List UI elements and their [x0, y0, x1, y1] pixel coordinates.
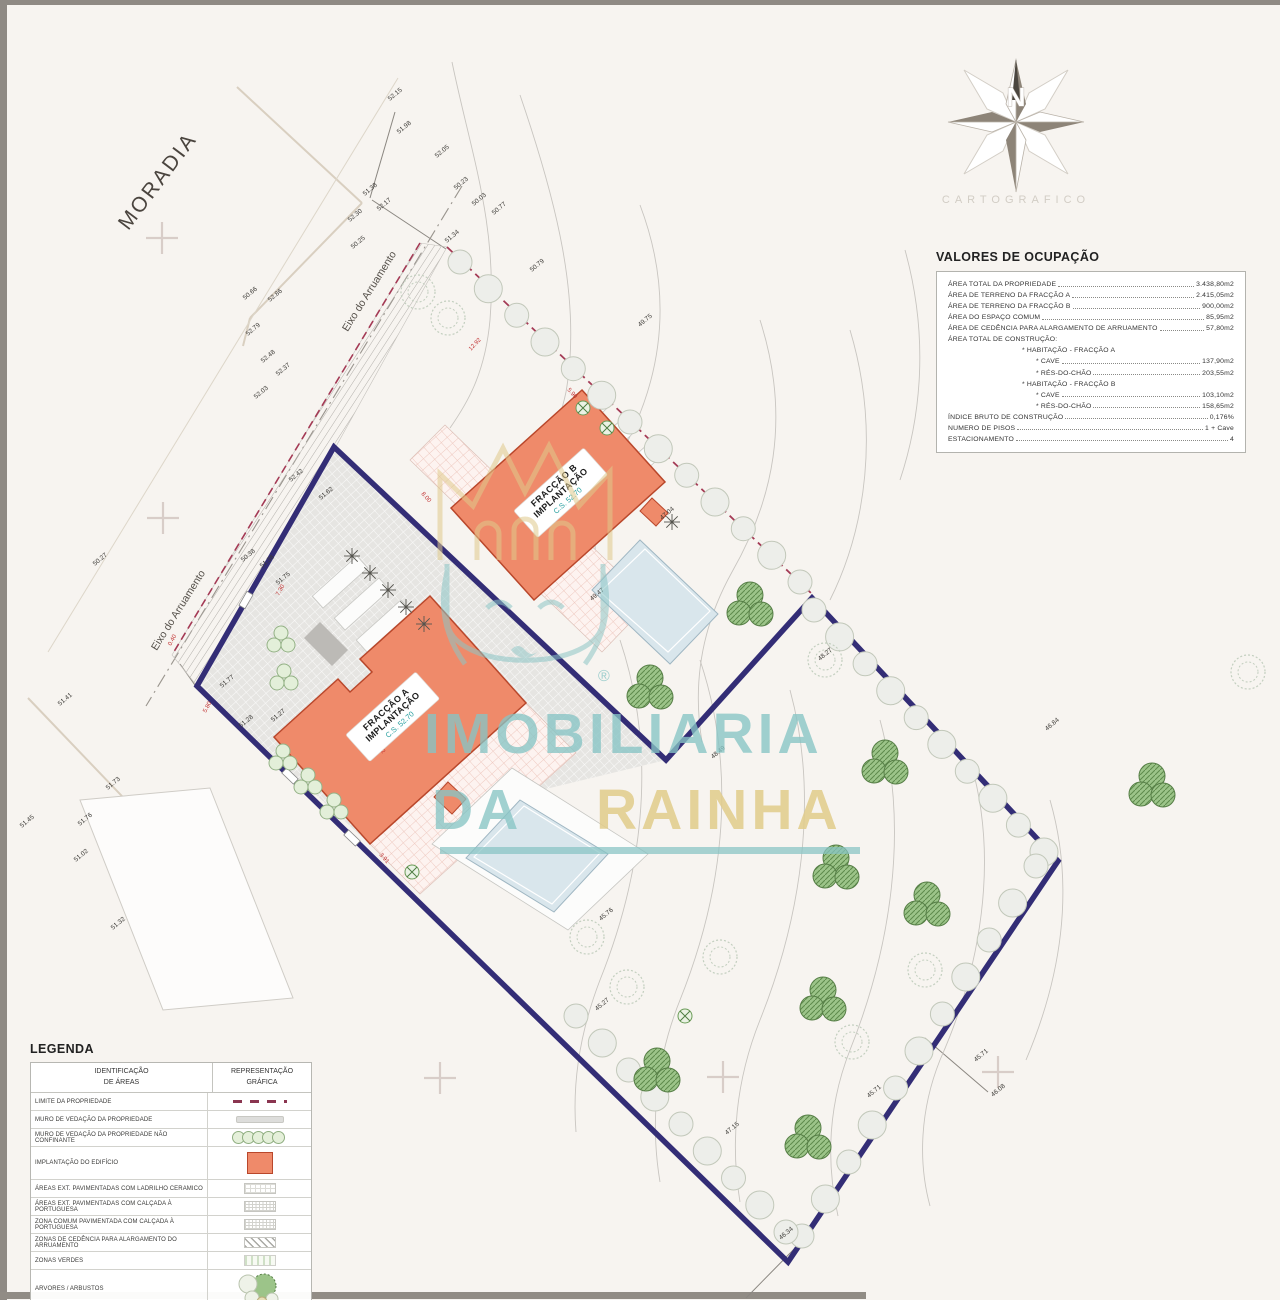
shrub-circle — [884, 1076, 908, 1100]
shrub-circle — [588, 381, 616, 409]
valores-row: * HABITAÇÃO - FRACÇÃO B — [948, 381, 1234, 388]
occupation-values-panel: VALORES DE OCUPAÇÃO ÁREA TOTAL DA PROPRI… — [936, 250, 1246, 453]
valores-row: * CAVE137,90m2 — [948, 358, 1234, 365]
survey-cross — [707, 1061, 739, 1093]
elevation-label: 50.77 — [491, 200, 508, 216]
elevation-label: 45.27 — [594, 996, 611, 1012]
elevation-label: 50.23 — [453, 175, 470, 191]
legend-row: ÁREAS EXT. PAVIMENTADAS COM CALÇADA À PO… — [31, 1198, 311, 1216]
survey-cross — [146, 222, 178, 254]
outline-tree — [808, 643, 842, 677]
elevation-label: 51.32 — [110, 915, 127, 931]
small-tree — [678, 1009, 692, 1023]
valores-row: ÁREA TOTAL DA PROPRIEDADE3.438,80m2 — [948, 281, 1234, 288]
valores-row: NUMERO DE PISOS1 + Cave — [948, 425, 1234, 432]
elevation-label: 51.02 — [73, 847, 90, 863]
spiky-tree — [344, 548, 360, 564]
shrub-circle — [731, 517, 755, 541]
outline-tree — [431, 301, 465, 335]
dimension-label: 8.00 — [420, 491, 433, 504]
valores-row: * RÉS-DO-CHÃO158,65m2 — [948, 403, 1234, 410]
legend-row: LIMITE DA PROPRIEDADE — [31, 1093, 311, 1111]
shrub-circle — [1006, 813, 1030, 837]
neighbour-parcel — [80, 788, 293, 1010]
elevation-label: 47.15 — [724, 1120, 741, 1136]
valores-row: ESTACIONAMENTO4 — [948, 436, 1234, 443]
elevation-label: 51.45 — [19, 813, 36, 829]
shrub-circle — [811, 1185, 839, 1213]
elevation-label: 52.17 — [376, 196, 393, 212]
legend-row: ARVORES / ARBUSTOS — [31, 1270, 311, 1300]
tree-cluster — [800, 977, 846, 1021]
shrub-circle — [448, 250, 472, 274]
sheet-frame-left — [0, 0, 7, 1300]
shrub-circle — [505, 303, 529, 327]
outline-tree — [908, 953, 942, 987]
building-symbol — [208, 1147, 311, 1179]
legend-row: ZONAS VERDES — [31, 1252, 311, 1270]
survey-cross — [424, 1062, 456, 1094]
compass-north-letter: N — [1007, 82, 1026, 112]
outline-tree — [835, 1025, 869, 1059]
verde-symbol — [208, 1252, 311, 1269]
tree-cluster — [634, 1048, 680, 1092]
elevation-label: 52.37 — [275, 361, 292, 377]
elevation-label: 50.25 — [350, 234, 367, 250]
survey-cross — [982, 1056, 1014, 1088]
wall-symbol — [208, 1111, 311, 1128]
legend-panel: LEGENDA IDENTIFICAÇÃODE ÁREAS REPRESENTA… — [30, 1042, 312, 1300]
legend-row: ÁREAS EXT. PAVIMENTADAS COM LADRILHO CER… — [31, 1180, 311, 1198]
watermark-underline — [440, 847, 860, 854]
limit-symbol — [208, 1093, 311, 1110]
valores-row: ÁREA TOTAL DE CONSTRUÇÃO: — [948, 336, 1234, 343]
legend-row: MURO DE VEDAÇÃO DA PROPRIEDADE — [31, 1111, 311, 1129]
shrub-circle — [675, 463, 699, 487]
valores-row: ÁREA DE CEDÊNCIA PARA ALARGAMENTO DE ARR… — [948, 325, 1234, 332]
outline-tree — [570, 920, 604, 954]
shrub-circle — [693, 1137, 721, 1165]
pool-b — [592, 540, 718, 664]
elevation-label: 45.76 — [598, 906, 615, 922]
shrub-circle — [758, 541, 786, 569]
elevation-label: 52.15 — [387, 86, 404, 102]
legend-row: MURO DE VEDAÇÃO DA PROPRIEDADE NÃO CONFI… — [31, 1129, 311, 1147]
survey-cross — [147, 502, 179, 534]
sheet-frame-top — [0, 0, 1280, 5]
contour-lines — [450, 62, 1063, 1216]
site-plan-sheet: 52.1551.9852.0551.3852.3052.1750.2550.66… — [0, 0, 1280, 1300]
elevation-label: 51.34 — [444, 228, 461, 244]
elevation-label: 46.84 — [1044, 716, 1061, 732]
shrub-circle — [952, 963, 980, 991]
elevation-label: 45.71 — [973, 1047, 990, 1063]
legend-row: IMPLANTAÇÃO DO EDIFÍCIO — [31, 1147, 311, 1180]
elevation-label: 51.98 — [396, 119, 413, 135]
tree-cluster — [904, 882, 950, 926]
arvores-symbol — [208, 1270, 311, 1300]
calcada2-symbol — [208, 1216, 311, 1233]
tile-symbol — [208, 1180, 311, 1197]
dimension-label: 12.92 — [468, 337, 483, 353]
valores-row: * CAVE103,10m2 — [948, 392, 1234, 399]
spiky-tree — [416, 616, 432, 632]
shrub-circle — [877, 677, 905, 705]
valores-row: * RÉS-DO-CHÃO203,55m2 — [948, 370, 1234, 377]
shrub-circle — [746, 1191, 774, 1219]
shrub-circle — [905, 1037, 933, 1065]
elevation-label: 50.79 — [529, 257, 546, 273]
occupation-values-table: ÁREA TOTAL DA PROPRIEDADE3.438,80m2ÁREA … — [936, 271, 1246, 453]
valores-row: ÁREA DE TERRENO DA FRACÇÃO A2.415,05m2 — [948, 292, 1234, 299]
shrub-circle — [588, 1029, 616, 1057]
shrub-circle — [701, 488, 729, 516]
valores-row: ÁREA DE TERRENO DA FRACÇÃO B900,00m2 — [948, 303, 1234, 310]
moradia-label: MORADIA — [114, 128, 202, 234]
valores-row: * HABITAÇÃO - FRACÇÃO A — [948, 347, 1234, 354]
spiky-tree — [380, 582, 396, 598]
tree-cluster — [627, 665, 673, 709]
shrub-circle — [904, 706, 928, 730]
tree-clusters — [627, 582, 1175, 1159]
elevation-label: 46.08 — [990, 1082, 1007, 1098]
small-tree — [600, 421, 614, 435]
shrub-circle — [853, 652, 877, 676]
calcada-symbol — [208, 1198, 311, 1215]
elevation-label: 52.30 — [347, 207, 364, 223]
spiky-tree — [362, 565, 378, 581]
shrub-circle — [928, 730, 956, 758]
shrub-circle — [977, 928, 1001, 952]
hedge-symbol — [208, 1129, 311, 1146]
legend-table: IDENTIFICAÇÃODE ÁREAS REPRESENTAÇÃOGRÁFI… — [30, 1062, 312, 1300]
shrub-circle — [788, 570, 812, 594]
shrub-circle — [474, 275, 502, 303]
legend-title: LEGENDA — [30, 1042, 312, 1056]
shrub-circle — [802, 598, 826, 622]
shrub-circle — [930, 1002, 954, 1026]
shrub-circle — [669, 1112, 693, 1136]
elevation-label: 45.71 — [866, 1083, 883, 1099]
shrub-circle — [826, 623, 854, 651]
tree-cluster — [862, 740, 908, 784]
elevation-label: 52.48 — [260, 348, 277, 364]
valores-row: ÁREA DO ESPAÇO COMUM85,95m2 — [948, 314, 1234, 321]
shrub-circle — [644, 435, 672, 463]
tree-cluster — [785, 1115, 831, 1159]
cedencia-symbol — [208, 1234, 311, 1251]
shrub-circle — [561, 357, 585, 381]
shrub-circle — [979, 784, 1007, 812]
elevation-label: 49.75 — [637, 312, 654, 328]
shrub-circle — [531, 328, 559, 356]
small-tree — [405, 865, 419, 879]
shrub-circle — [1024, 854, 1048, 878]
small-tree — [576, 401, 590, 415]
legend-header-areas: IDENTIFICAÇÃODE ÁREAS — [31, 1063, 213, 1092]
elevation-label: 52.05 — [434, 143, 451, 159]
legend-row: ZONAS DE CEDÊNCIA PARA ALARGAMENTO DO AR… — [31, 1234, 311, 1252]
elevation-label: 50.03 — [471, 191, 488, 207]
tree-cluster — [727, 582, 773, 626]
elevation-label: 51.41 — [57, 691, 74, 707]
shrub-circle — [858, 1111, 886, 1139]
legend-header: IDENTIFICAÇÃODE ÁREAS REPRESENTAÇÃOGRÁFI… — [31, 1063, 311, 1093]
shrub-circle — [618, 410, 642, 434]
compass-rose: N CARTOGRAFICO — [942, 58, 1090, 206]
shrub-circle — [999, 889, 1027, 917]
outline-tree — [610, 970, 644, 1004]
shrub-circle — [722, 1166, 746, 1190]
shrub-circle — [837, 1150, 861, 1174]
outline-tree — [703, 940, 737, 974]
occupation-values-title: VALORES DE OCUPAÇÃO — [936, 250, 1246, 264]
shrub-circle — [564, 1004, 588, 1028]
outline-tree — [1231, 655, 1265, 689]
compass-caption: CARTOGRAFICO — [942, 194, 1090, 206]
spiky-tree — [398, 599, 414, 615]
tree-cluster — [1129, 763, 1175, 807]
elevation-label: 51.73 — [105, 775, 122, 791]
elevation-label: 52.79 — [245, 321, 262, 337]
elevation-label: 52.03 — [253, 384, 270, 400]
shrub-circle — [955, 759, 979, 783]
elevation-label: 50.66 — [242, 285, 259, 301]
legend-row: ZONA COMUM PAVIMENTADA COM CALÇADA À POR… — [31, 1216, 311, 1234]
valores-row: ÍNDICE BRUTO DE CONSTRUÇÃO0,176% — [948, 414, 1234, 421]
elevation-label: 48.49 — [710, 744, 727, 760]
legend-header-graphics: REPRESENTAÇÃOGRÁFICA — [213, 1063, 311, 1092]
